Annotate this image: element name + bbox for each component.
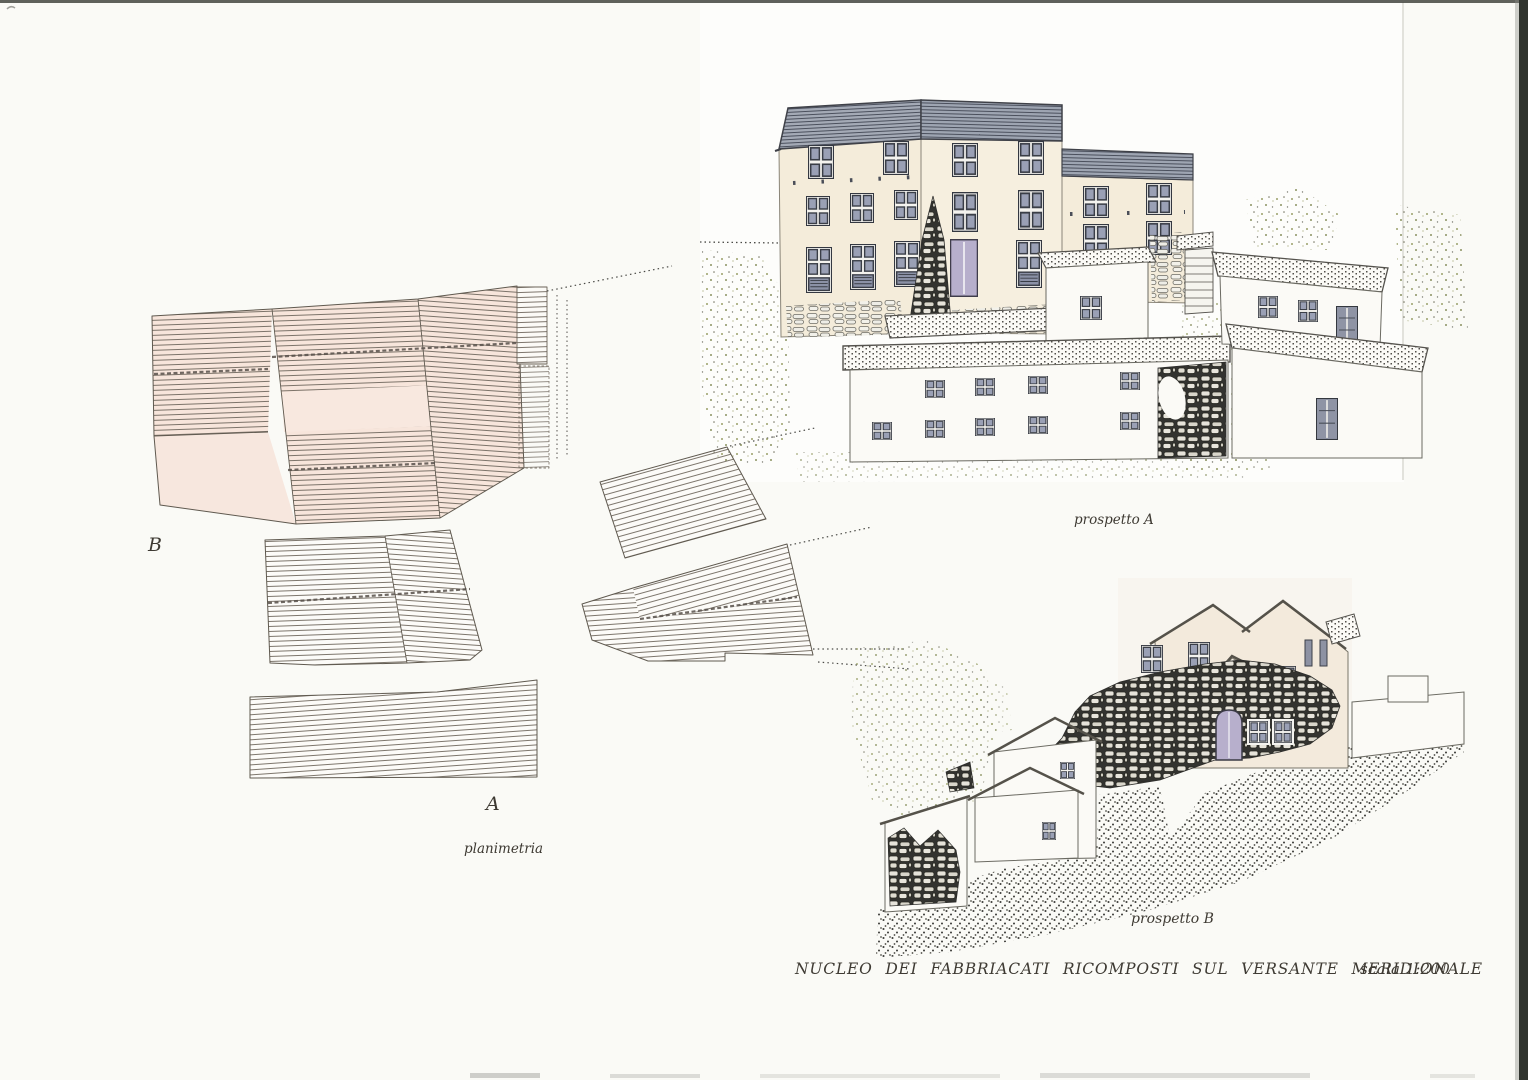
scale-note: scala 1:200: [1360, 960, 1450, 978]
plan-marker-a: A: [486, 793, 500, 815]
right-small-block: [1388, 676, 1428, 702]
door-lilac: [950, 239, 978, 297]
lower-right-house: [1226, 324, 1428, 458]
main-roof-center: [921, 100, 1062, 141]
elevation-b-caption: prospetto B: [1131, 911, 1214, 927]
scan-edge-right-soft: [1515, 0, 1519, 1080]
plan-marker-b: B: [148, 534, 162, 556]
small-white-house: [1038, 247, 1156, 344]
scanned-drawing-sheet: B A planimetria prospetto A prospetto B …: [0, 0, 1528, 1080]
long-low-building: [843, 336, 1230, 462]
plan-roof-cluster-top: [152, 286, 524, 524]
slit-window: [1305, 640, 1312, 666]
elevation-a-caption: prospetto A: [1074, 512, 1154, 528]
slit-window: [1320, 640, 1327, 666]
drawing-canvas: [0, 0, 1528, 1080]
main-roof-right: [1062, 149, 1193, 180]
scan-edge-top: [0, 0, 1528, 3]
scan-edge-right: [1519, 0, 1528, 1080]
plan-caption: planimetria: [464, 841, 543, 857]
plan-roof-cluster-middle: [265, 530, 482, 665]
vegetation-tuft: [966, 682, 1012, 736]
